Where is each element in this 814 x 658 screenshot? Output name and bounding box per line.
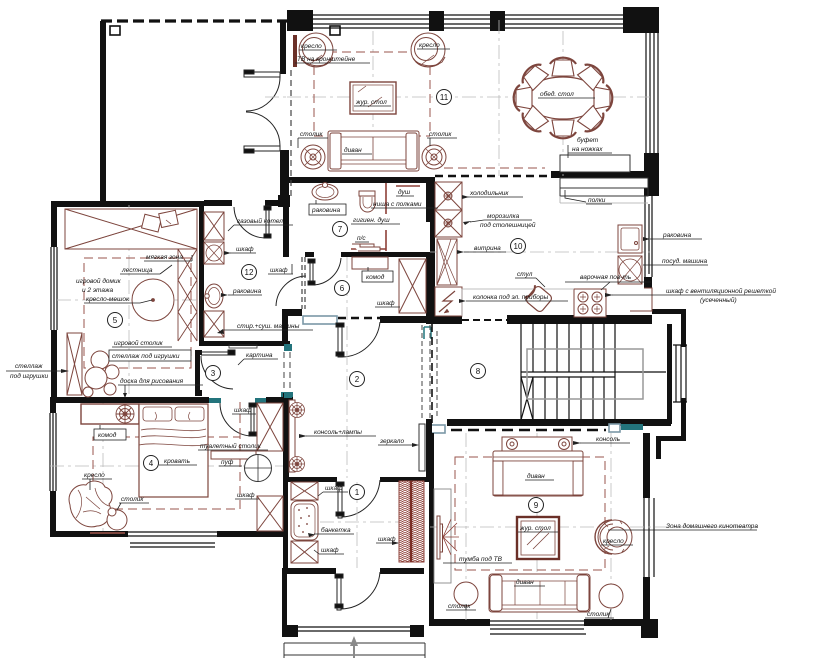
svg-text:витрина: витрина — [474, 245, 501, 252]
svg-text:душ: душ — [398, 188, 411, 196]
svg-text:и 2 этажа: и 2 этажа — [82, 287, 113, 294]
svg-text:кресло: кресло — [301, 43, 322, 50]
svg-text:жур. стол: жур. стол — [355, 99, 387, 106]
svg-text:1: 1 — [355, 488, 360, 497]
svg-text:стеллаж под игрушки: стеллаж под игрушки — [112, 352, 180, 360]
svg-text:кровать: кровать — [164, 458, 191, 465]
svg-text:картина: картина — [246, 352, 273, 359]
svg-text:шкаф: шкаф — [236, 246, 254, 253]
svg-text:консоль: консоль — [596, 436, 621, 443]
svg-text:ТВ на кронштейне: ТВ на кронштейне — [297, 55, 356, 63]
svg-text:столик: столик — [121, 496, 144, 503]
svg-text:кресло-мешок: кресло-мешок — [86, 296, 130, 303]
svg-text:туалетный столик: туалетный столик — [200, 442, 262, 450]
svg-text:стеллаж: стеллаж — [15, 363, 43, 370]
svg-text:столик: столик — [429, 131, 452, 138]
svg-text:11: 11 — [440, 93, 449, 102]
svg-text:шкаф: шкаф — [377, 300, 395, 307]
svg-text:гигиен. душ: гигиен. душ — [353, 216, 390, 224]
svg-text:столик: столик — [587, 611, 610, 618]
svg-text:варочная пов-ть: варочная пов-ть — [580, 274, 632, 281]
svg-text:раковина: раковина — [662, 232, 691, 239]
svg-text:буфет: буфет — [577, 136, 599, 144]
svg-text:шкаф: шкаф — [270, 267, 288, 274]
svg-text:полки: полки — [588, 197, 606, 204]
svg-text:комод: комод — [98, 431, 117, 439]
svg-text:банкетка: банкетка — [321, 526, 351, 534]
svg-text:шкаф: шкаф — [325, 485, 343, 492]
svg-text:столик: столик — [300, 131, 323, 138]
svg-text:морозилка: морозилка — [487, 213, 520, 220]
svg-text:диван: диван — [344, 146, 362, 154]
svg-text:кресло: кресло — [84, 472, 105, 479]
svg-text:стул: стул — [517, 271, 533, 278]
svg-text:ниша с полками: ниша с полками — [373, 201, 422, 208]
svg-text:пуф: пуф — [221, 459, 234, 466]
svg-text:диван: диван — [516, 578, 534, 586]
svg-text:раковина: раковина — [311, 207, 340, 214]
svg-text:3: 3 — [211, 369, 216, 378]
svg-text:кресло: кресло — [603, 538, 624, 545]
svg-text:мягкая зона: мягкая зона — [146, 254, 183, 261]
svg-text:игровой столик: игровой столик — [114, 339, 164, 347]
svg-text:2: 2 — [355, 375, 360, 384]
svg-text:консоль+лампы: консоль+лампы — [314, 429, 362, 436]
svg-text:под игрушки: под игрушки — [10, 372, 49, 380]
svg-text:5: 5 — [113, 316, 118, 325]
svg-text:п/с: п/с — [357, 235, 366, 242]
svg-text:раковина: раковина — [232, 288, 261, 295]
svg-text:тумба под ТВ: тумба под ТВ — [459, 555, 503, 563]
svg-text:12: 12 — [245, 268, 254, 277]
svg-text:Зона домашнего кинотеатра: Зона домашнего кинотеатра — [666, 522, 758, 530]
svg-text:8: 8 — [476, 367, 481, 376]
svg-text:комод: комод — [366, 273, 385, 281]
svg-text:шкаф: шкаф — [234, 407, 252, 414]
svg-text:4: 4 — [149, 459, 154, 468]
svg-text:7: 7 — [338, 225, 343, 234]
svg-text:6: 6 — [340, 284, 345, 293]
svg-text:колонка под эл. приборы: колонка под эл. приборы — [473, 293, 549, 301]
svg-text:посуд. машина: посуд. машина — [662, 257, 707, 265]
svg-text:холодильник: холодильник — [469, 189, 509, 197]
svg-text:шкаф: шкаф — [237, 492, 255, 499]
svg-text:лестница: лестница — [121, 267, 153, 274]
svg-text:шкаф с вентиляционной решеткой: шкаф с вентиляционной решеткой — [666, 287, 776, 295]
svg-text:игровой домик: игровой домик — [76, 277, 122, 285]
svg-text:газовый котел: газовый котел — [237, 217, 283, 225]
svg-text:обед. стол: обед. стол — [540, 90, 574, 98]
svg-text:жур. стол: жур. стол — [519, 525, 551, 532]
svg-text:стир.+суш. машины: стир.+суш. машины — [237, 323, 300, 330]
svg-text:на ножках: на ножках — [572, 146, 603, 153]
svg-text:под столешницей: под столешницей — [480, 221, 536, 229]
svg-text:доска для рисования: доска для рисования — [120, 377, 184, 385]
svg-text:шкаф: шкаф — [321, 547, 339, 554]
svg-text:кресло: кресло — [419, 42, 440, 49]
svg-text:(усеченный): (усеченный) — [700, 296, 737, 304]
svg-text:диван: диван — [527, 472, 545, 480]
svg-text:зеркало: зеркало — [379, 438, 404, 445]
svg-text:столик: столик — [448, 603, 471, 610]
svg-text:10: 10 — [514, 242, 523, 251]
svg-text:9: 9 — [534, 501, 539, 510]
